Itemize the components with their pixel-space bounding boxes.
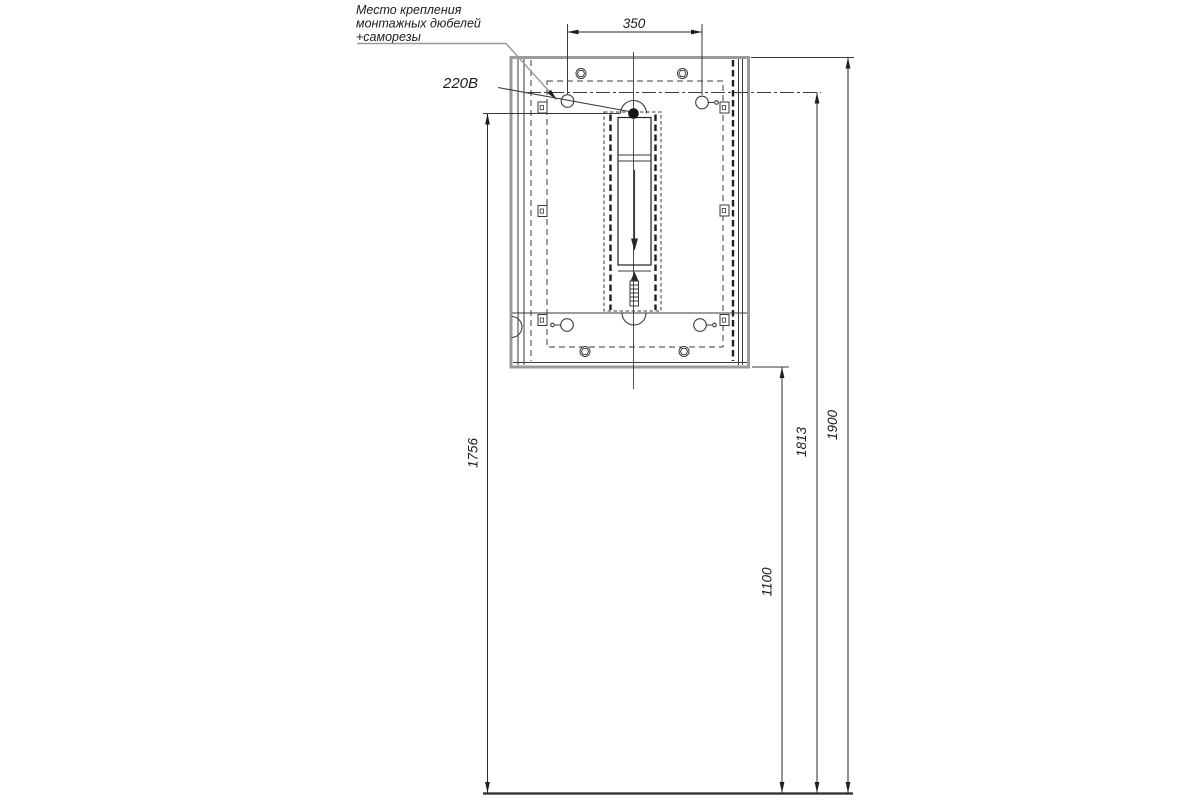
screw-icon bbox=[576, 69, 586, 79]
power-outlet-dot bbox=[628, 108, 639, 119]
clip-icon bbox=[538, 102, 547, 113]
clip-icon bbox=[538, 206, 547, 217]
dim-dowel-mount-height: 1813 bbox=[794, 93, 817, 794]
dim-label-1100: 1100 bbox=[760, 567, 775, 597]
dim-cabinet-bottom-height: 1100 bbox=[752, 367, 789, 793]
dowel-hole-icon bbox=[694, 319, 707, 332]
cabinet-body bbox=[511, 52, 821, 389]
screw-icon bbox=[679, 347, 689, 357]
clip-icon bbox=[720, 205, 729, 216]
dowel-hole-icon bbox=[696, 96, 709, 109]
clip-icon bbox=[720, 102, 729, 113]
dim-label-1900: 1900 bbox=[825, 409, 840, 440]
down-arrow-icon bbox=[631, 239, 638, 252]
dim-label-350: 350 bbox=[623, 16, 646, 31]
clip-icon bbox=[720, 315, 729, 326]
mounting-note-line-1: Место крепления bbox=[356, 3, 462, 17]
cabinet-side-panel-lines bbox=[513, 59, 747, 365]
clip-icon bbox=[538, 315, 547, 326]
extension-lines bbox=[568, 24, 703, 95]
slot-ribs bbox=[631, 285, 639, 301]
dowel-hole-icon bbox=[561, 319, 574, 332]
cable-entry-bump bbox=[512, 317, 522, 338]
dim-label-1756: 1756 bbox=[466, 437, 481, 468]
cable-channel bbox=[604, 101, 661, 326]
screw-icon bbox=[580, 347, 590, 357]
power-label: 220В bbox=[442, 75, 478, 92]
mounting-note-line-2: монтажных дюбелей bbox=[356, 17, 481, 31]
dim-cabinet-top-height: 1900 bbox=[751, 58, 854, 794]
mounting-drawing: 350 1756 1100 1813 1900 Место крепления … bbox=[0, 0, 1200, 800]
outlet-arc-bottom bbox=[622, 313, 646, 325]
mounting-note-line-3: +саморезы bbox=[356, 30, 421, 44]
dim-label-1813: 1813 bbox=[794, 426, 809, 457]
dim-dowel-spacing: 350 bbox=[568, 16, 703, 95]
up-arrow-icon bbox=[631, 272, 639, 282]
screw-icon bbox=[678, 69, 688, 79]
